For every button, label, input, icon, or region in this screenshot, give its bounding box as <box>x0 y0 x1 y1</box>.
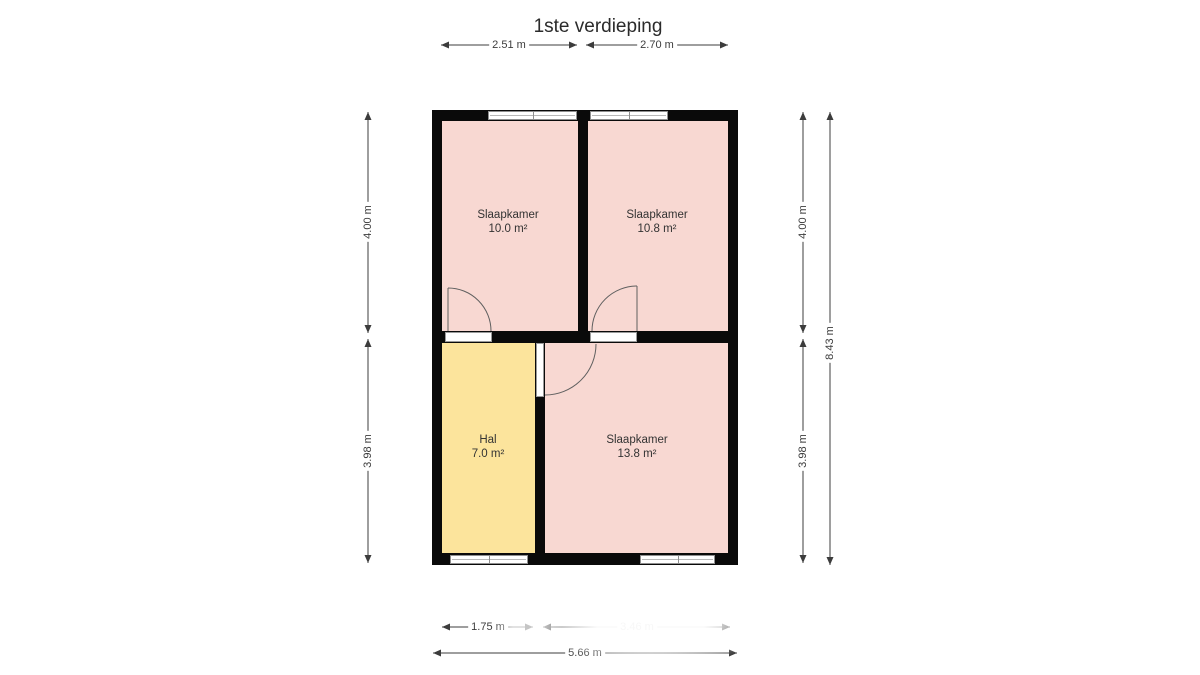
door-arc-slaapkamer-1 <box>448 288 491 331</box>
dimension-label-left-2: 3.98 m <box>362 431 374 471</box>
dimension-label-right-1: 4.00 m <box>797 202 809 242</box>
plan-overlay <box>0 0 1200 675</box>
dimension-label-total-height: 8.43 m <box>824 323 836 363</box>
room-area: 10.0 m² <box>477 222 538 236</box>
dimension-label-bottom-2: 3.46 m <box>617 621 657 633</box>
room-name: Slaapkamer <box>477 208 538 222</box>
room-name: Slaapkamer <box>626 208 687 222</box>
room-area: 13.8 m² <box>606 447 667 461</box>
dimension-label-right-2: 3.98 m <box>797 431 809 471</box>
room-label-slaapkamer-2: Slaapkamer 10.8 m² <box>626 208 687 236</box>
door-arc-hal <box>545 344 596 395</box>
room-label-slaapkamer-1: Slaapkamer 10.0 m² <box>477 208 538 236</box>
floorplan-page: 1ste verdieping <box>0 0 1200 675</box>
dimension-label-top-2: 2.70 m <box>637 39 677 51</box>
room-label-hal: Hal 7.0 m² <box>472 433 505 461</box>
dimension-label-bottom-1: 1.75 m <box>468 621 508 633</box>
dimension-label-total-width: 5.66 m <box>565 647 605 659</box>
room-name: Slaapkamer <box>606 433 667 447</box>
room-area: 10.8 m² <box>626 222 687 236</box>
room-label-slaapkamer-3: Slaapkamer 13.8 m² <box>606 433 667 461</box>
room-name: Hal <box>472 433 505 447</box>
room-area: 7.0 m² <box>472 447 505 461</box>
door-arc-slaapkamer-2 <box>592 286 637 331</box>
dimension-label-left-1: 4.00 m <box>362 202 374 242</box>
dimension-label-top-1: 2.51 m <box>489 39 529 51</box>
